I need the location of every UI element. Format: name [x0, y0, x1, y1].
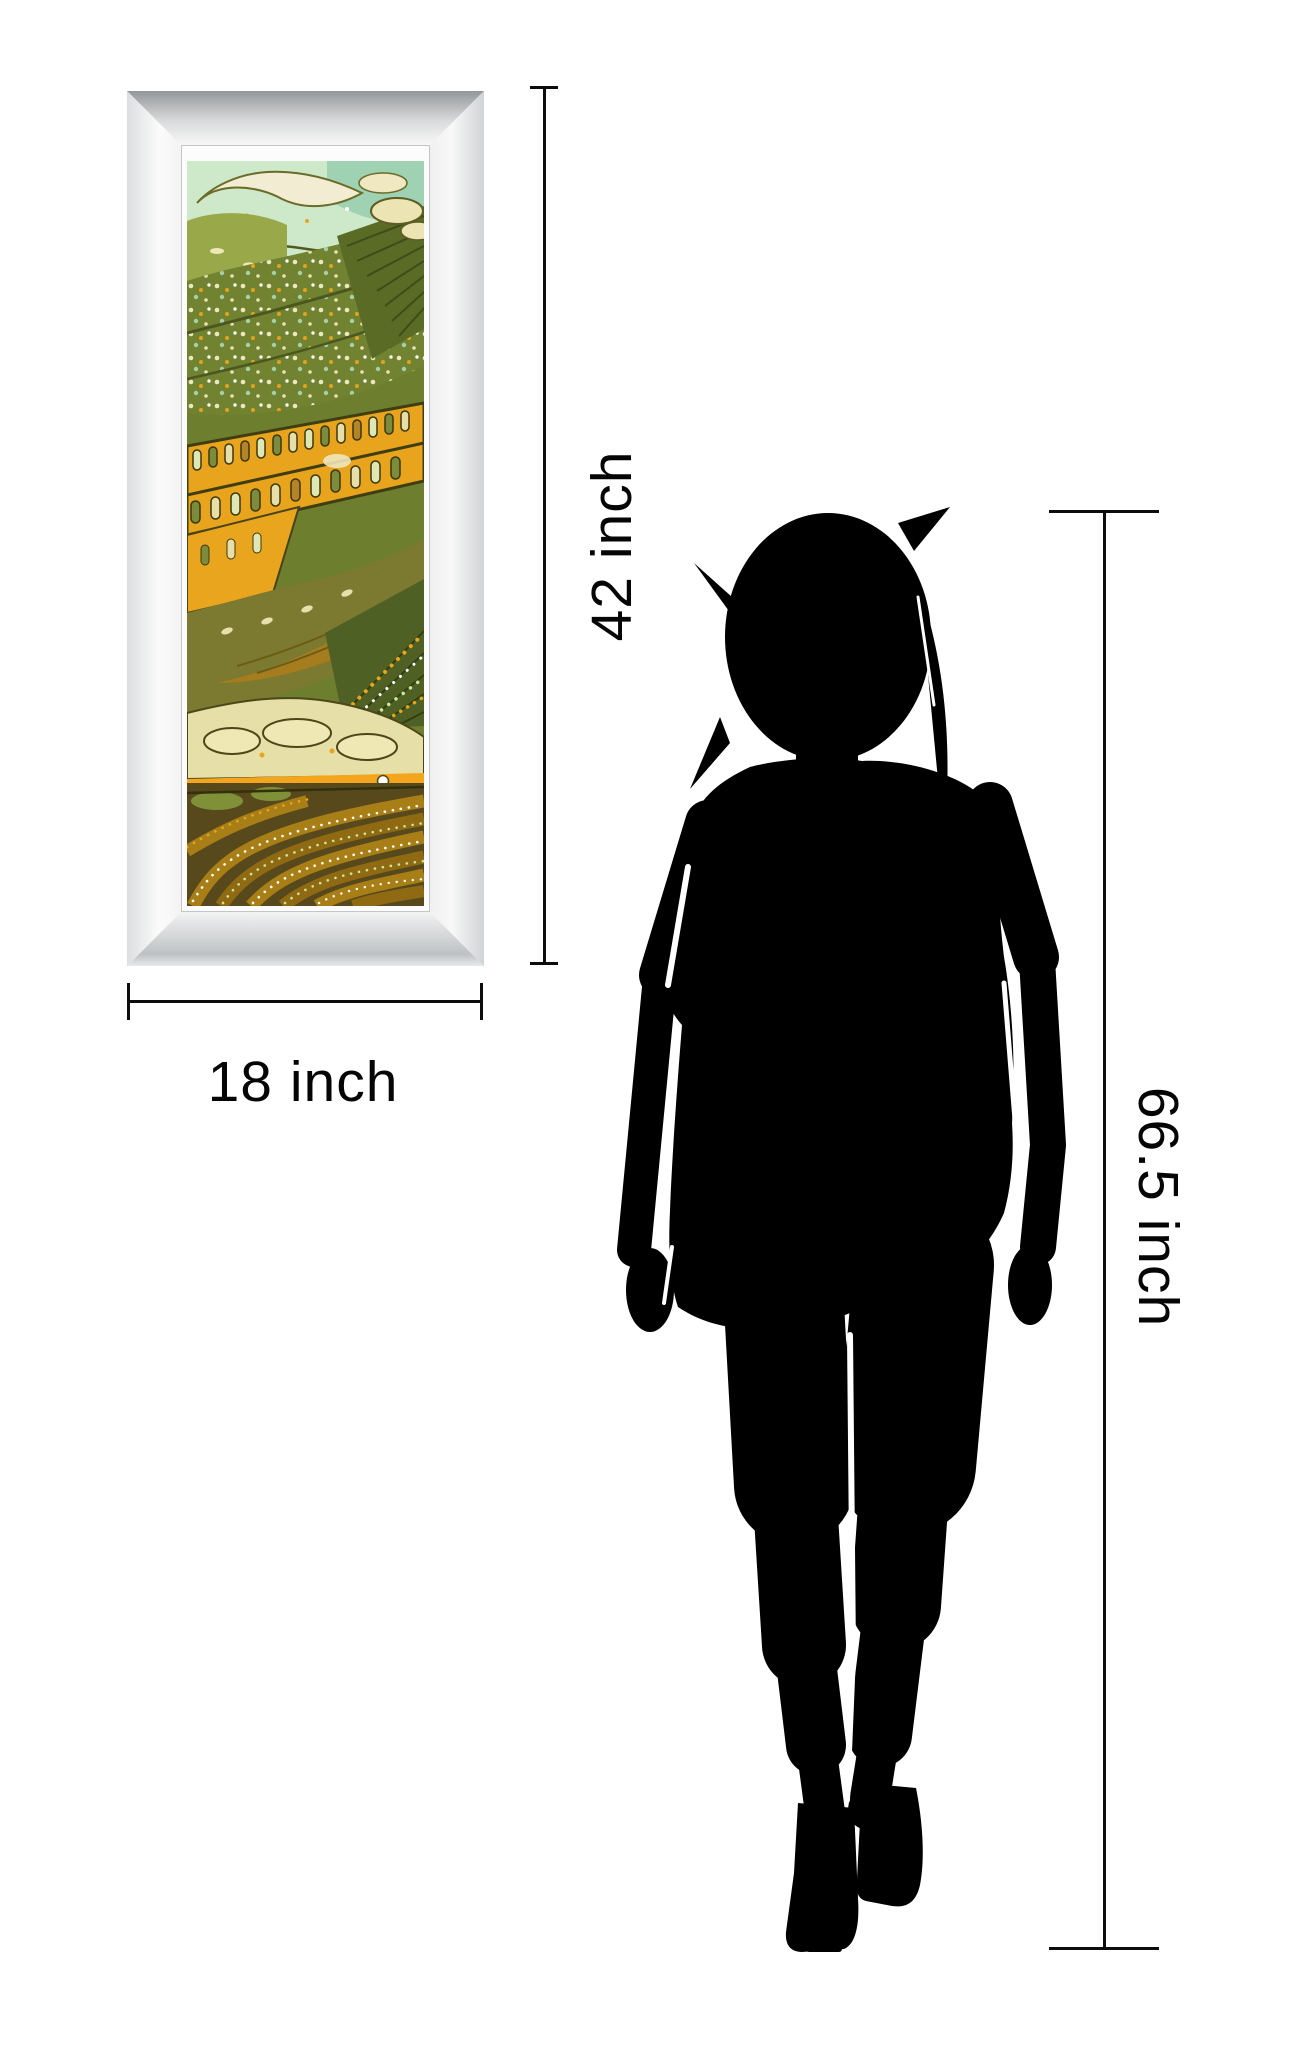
frame-band-left [127, 91, 181, 966]
frame-width-label: 18 inch [163, 1050, 443, 1114]
frame-band-right [430, 91, 484, 966]
frame-width-left-cap [127, 983, 130, 1020]
frame-height-top-cap [530, 86, 558, 89]
frame-height-dimension-line [543, 87, 546, 965]
picture-frame [127, 91, 484, 966]
person-height-label: 66.5 inch [1126, 1047, 1190, 1367]
artwork-image [187, 161, 424, 906]
frame-width-dimension-line [128, 1000, 483, 1003]
person-height-dimension-line [1103, 511, 1106, 1950]
frame-band-top [127, 91, 484, 145]
frame-height-bottom-cap [530, 962, 558, 965]
size-comparison-diagram: 42 inch 18 inch 66.5 inch [0, 0, 1296, 2048]
frame-band-bottom [127, 912, 484, 966]
frame-width-right-cap [480, 983, 483, 1020]
woman-silhouette [600, 505, 1070, 1955]
